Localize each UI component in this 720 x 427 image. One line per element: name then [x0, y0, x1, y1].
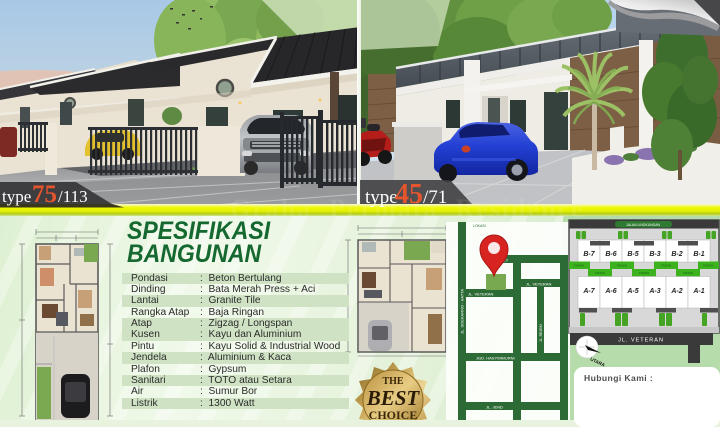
- svg-text:75: 75: [32, 182, 57, 208]
- svg-text:JALAN LINGKUNGAN: JALAN LINGKUNGAN: [626, 223, 660, 227]
- svg-text:JL. REJEKI: JL. REJEKI: [539, 324, 543, 342]
- svg-text:TAMAN: TAMAN: [595, 271, 605, 275]
- svg-text:LOKASI: LOKASI: [473, 224, 486, 228]
- svg-text:TAMAN: TAMAN: [703, 264, 713, 268]
- svg-text:B-6: B-6: [605, 251, 616, 258]
- svg-text:BEST: BEST: [366, 386, 421, 410]
- svg-text:TAMAN: TAMAN: [639, 271, 649, 275]
- svg-text:TAMAN: TAMAN: [617, 264, 627, 268]
- svg-text:JL. SOEKARNO - HATTA: JL. SOEKARNO - HATTA: [460, 288, 465, 334]
- svg-text:/113: /113: [58, 187, 88, 206]
- svg-text:JL. VETERAN: JL. VETERAN: [468, 292, 493, 297]
- svg-text:TAMAN: TAMAN: [661, 264, 671, 268]
- svg-text:type: type: [2, 187, 31, 206]
- svg-text:B-5: B-5: [627, 251, 638, 258]
- svg-text:B-1: B-1: [693, 251, 704, 258]
- svg-text:A-2: A-2: [670, 288, 682, 295]
- svg-text:TAMAN: TAMAN: [574, 264, 584, 268]
- svg-text:JL. VETERAN: JL. VETERAN: [618, 338, 664, 344]
- svg-text:B-3: B-3: [649, 251, 660, 258]
- svg-text:A-7: A-7: [582, 288, 595, 295]
- svg-text:JL. JEND: JL. JEND: [486, 405, 503, 410]
- svg-text:JGD. HASYIMMURNI: JGD. HASYIMMURNI: [476, 356, 515, 361]
- svg-text:B-7: B-7: [583, 251, 595, 258]
- svg-text:A-1: A-1: [692, 288, 704, 295]
- svg-text:B-2: B-2: [671, 251, 682, 258]
- svg-text:CHOICE: CHOICE: [369, 408, 418, 420]
- svg-text:JL. VETERAN: JL. VETERAN: [526, 282, 551, 287]
- svg-text:TAMAN: TAMAN: [683, 271, 693, 275]
- svg-text:A-6: A-6: [604, 288, 616, 295]
- svg-text:A-5: A-5: [626, 288, 638, 295]
- svg-text:A-3: A-3: [648, 288, 660, 295]
